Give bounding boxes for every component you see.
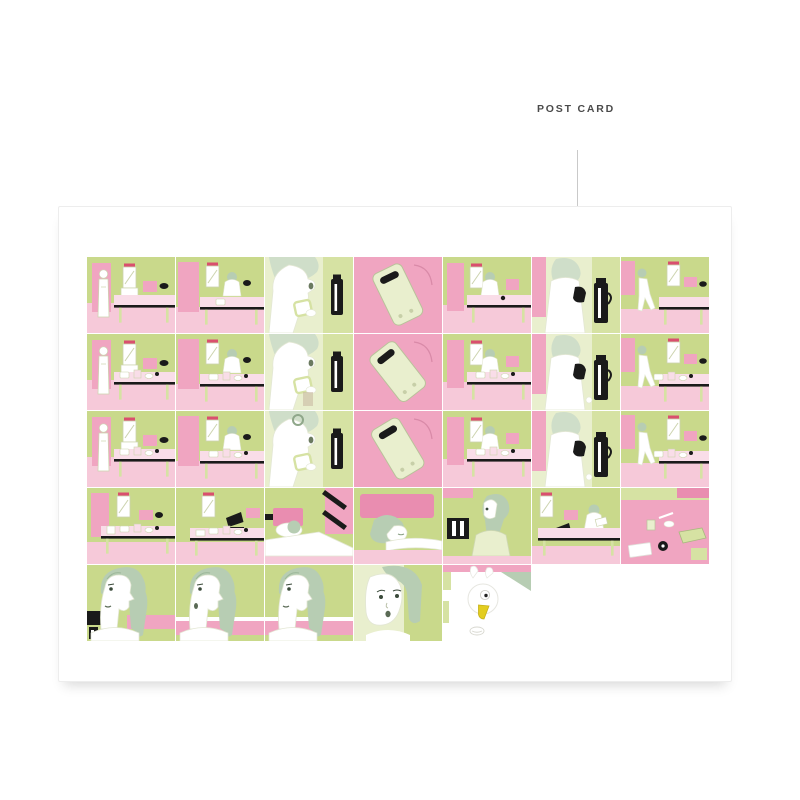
panel-room-vanity [87, 257, 175, 333]
panel-phone [354, 334, 442, 410]
panel-room-walk [621, 411, 709, 487]
panel-empty [621, 565, 709, 641]
panel-face-profile [176, 565, 264, 641]
panel-woman-flask [532, 334, 620, 410]
panel-waking-up [443, 488, 531, 564]
panel-room-desk [443, 257, 531, 333]
panel-face-profile [265, 565, 353, 641]
pointer-line [577, 150, 578, 207]
product-image: POST CARD [0, 0, 800, 800]
panel-face-cup [265, 411, 353, 487]
panel-room-vanity [87, 334, 175, 410]
panel-room-desk [443, 334, 531, 410]
panel-room-walk [621, 334, 709, 410]
panel-face-cup [265, 334, 353, 410]
panel-desk-reading [532, 488, 620, 564]
panel-desk-laptop [176, 488, 264, 564]
panel-room-vanity [87, 411, 175, 487]
comic-grid [87, 257, 709, 641]
panel-face-profile-tv [87, 565, 175, 641]
panel-desk-topview [621, 488, 709, 564]
postcard [58, 206, 732, 682]
panel-woman-flask [532, 257, 620, 333]
panel-room-walk [621, 257, 709, 333]
panel-room-desk [443, 411, 531, 487]
panel-face-front [354, 565, 442, 641]
panel-bed-closeup [354, 488, 442, 564]
post-card-label: POST CARD [537, 103, 615, 115]
panel-duck [443, 565, 531, 641]
panel-phone [354, 411, 442, 487]
panel-room-sitting [176, 411, 264, 487]
panel-desk-items [87, 488, 175, 564]
panel-woman-flask [532, 411, 620, 487]
panel-bed-stairs [265, 488, 353, 564]
panel-empty [532, 565, 620, 641]
panel-phone [354, 257, 442, 333]
panel-room-sitting [176, 257, 264, 333]
panel-room-sitting [176, 334, 264, 410]
panel-face-cup [265, 257, 353, 333]
